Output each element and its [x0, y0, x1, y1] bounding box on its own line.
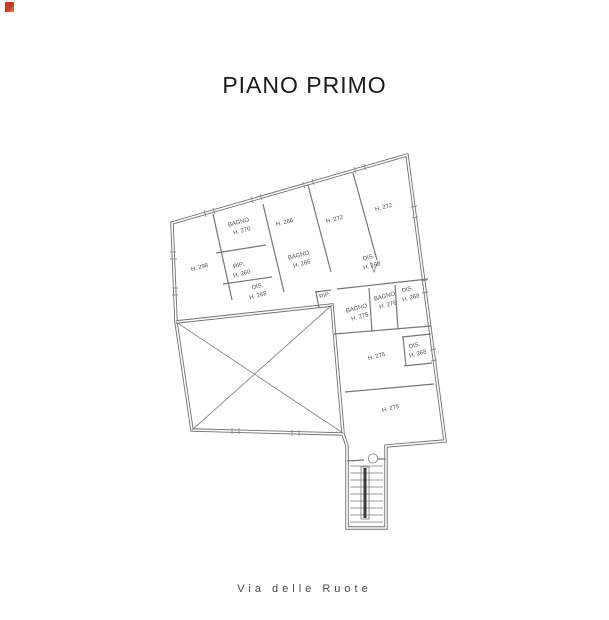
svg-text:H. 298: H. 298	[190, 263, 209, 274]
svg-text:H. 266: H. 266	[293, 259, 312, 270]
svg-text:H. 268: H. 268	[363, 261, 382, 272]
room-label-camera-south-mid: H. 275	[367, 352, 386, 363]
svg-text:H. 268: H. 268	[409, 349, 428, 360]
room-label-camera-left: H. 298	[190, 263, 209, 274]
interior-walls	[213, 173, 434, 392]
window-ticks	[170, 164, 437, 436]
svg-text:RIP.: RIP.	[233, 262, 245, 271]
street-name-label: Via delle Ruote	[0, 583, 609, 595]
courtyard-walls	[176, 305, 343, 433]
svg-text:H. 266: H. 266	[275, 218, 294, 229]
room-label-rip-nw: RIP. H. 260	[230, 260, 252, 279]
room-label-bagno-nw: BAGNO H. 270	[227, 217, 252, 237]
svg-text:RIP.: RIP.	[319, 292, 331, 301]
svg-text:DIS.: DIS.	[401, 286, 414, 295]
room-label-dis-center: DIS. H. 268	[360, 252, 382, 271]
scanned-floor-plan-page: PIANO PRIMO	[0, 0, 609, 620]
svg-text:H. 275: H. 275	[381, 404, 400, 415]
room-label-camera-272-b: H. 272	[374, 203, 393, 214]
svg-text:DIS.: DIS.	[251, 283, 264, 292]
svg-text:H. 275: H. 275	[351, 312, 370, 323]
svg-text:H. 270: H. 270	[233, 226, 252, 237]
floor-plan-drawing: H. 298 BAGNO H. 270 RIP. H. 260 DIS. H. …	[0, 0, 609, 620]
svg-text:H. 272: H. 272	[374, 203, 393, 214]
room-label-camera-272-a: H. 272	[325, 215, 344, 226]
room-label-bagno-center: BAGNO H. 266	[287, 250, 312, 270]
room-label-rip-center: RIP.	[319, 292, 331, 301]
room-label-dis-nw: DIS. H. 268	[246, 282, 268, 301]
svg-text:DIS.: DIS.	[408, 342, 421, 351]
svg-text:H. 268: H. 268	[402, 293, 421, 304]
courtyard-diagonals	[176, 305, 343, 433]
svg-text:H. 268: H. 268	[249, 291, 268, 302]
svg-text:H. 272: H. 272	[325, 215, 344, 226]
room-label-bagno-south-a: BAGNO H. 275	[345, 303, 370, 323]
room-label-dis-east-b: DIS. H. 268	[406, 340, 428, 359]
svg-text:H. 260: H. 260	[233, 269, 252, 280]
svg-text:DIS.: DIS.	[362, 254, 375, 263]
room-label-camera-center: H. 266	[275, 218, 294, 229]
room-label-bagno-south-b: BAGNO H. 276	[373, 291, 398, 311]
svg-text:H. 275: H. 275	[367, 352, 386, 363]
svg-text:H. 276: H. 276	[379, 300, 398, 311]
staircase	[347, 454, 386, 522]
room-label-camera-south: H. 275	[381, 404, 400, 415]
room-label-dis-east-a: DIS. H. 268	[399, 284, 421, 303]
